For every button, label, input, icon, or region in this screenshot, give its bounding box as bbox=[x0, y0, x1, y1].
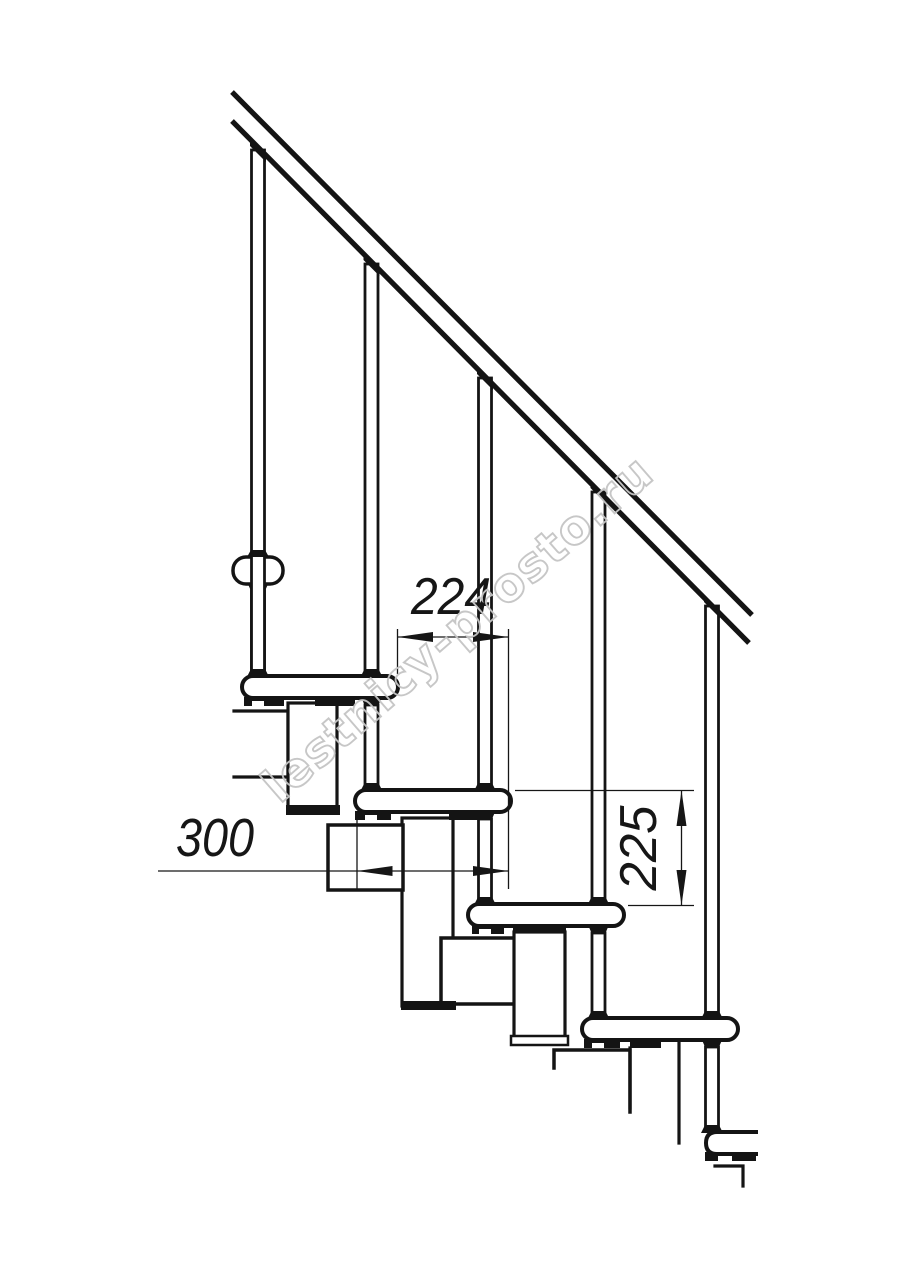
staircase-drawing-canvas: 224 300 225 lestnicy-prosto.ru bbox=[0, 0, 914, 1280]
post-under-tread-1 bbox=[365, 705, 378, 785]
riser-box-1-base bbox=[286, 805, 340, 815]
tread-1 bbox=[242, 676, 398, 698]
dim-225-label: 225 bbox=[610, 804, 668, 891]
dim-224-arrow-left bbox=[398, 632, 434, 642]
baluster-2 bbox=[365, 264, 378, 671]
post-under-tread-3 bbox=[592, 933, 605, 1013]
riser-box-1 bbox=[288, 703, 337, 812]
post-under-tread-4 bbox=[706, 1047, 719, 1127]
dim-300-label: 300 bbox=[176, 808, 254, 868]
staircase-side-view-drawing: 224 300 225 bbox=[0, 0, 914, 1280]
dim-225-arrow-down bbox=[677, 870, 687, 906]
module-body-3 bbox=[441, 938, 516, 1004]
bottom-break-line bbox=[715, 1166, 743, 1186]
riser-box-3 bbox=[514, 932, 565, 1037]
baluster-1 bbox=[252, 150, 265, 671]
tread-5-cut bbox=[706, 1132, 758, 1154]
baluster-4 bbox=[592, 492, 605, 899]
dim-225-arrow-up bbox=[677, 791, 687, 827]
dim-224-label: 224 bbox=[410, 568, 491, 626]
module-body-4 bbox=[554, 1050, 630, 1112]
tread-3 bbox=[468, 904, 624, 926]
module-body-2 bbox=[328, 825, 403, 890]
wall-bracket-box bbox=[234, 711, 288, 777]
baluster-5 bbox=[706, 606, 719, 1013]
riser-box-4-cut bbox=[630, 1042, 679, 1143]
tread-4 bbox=[582, 1018, 738, 1040]
riser-box-2-base bbox=[401, 1001, 456, 1010]
post-under-tread-2 bbox=[479, 819, 492, 899]
tread-2 bbox=[355, 790, 511, 812]
riser-box-3-flange bbox=[511, 1036, 568, 1045]
